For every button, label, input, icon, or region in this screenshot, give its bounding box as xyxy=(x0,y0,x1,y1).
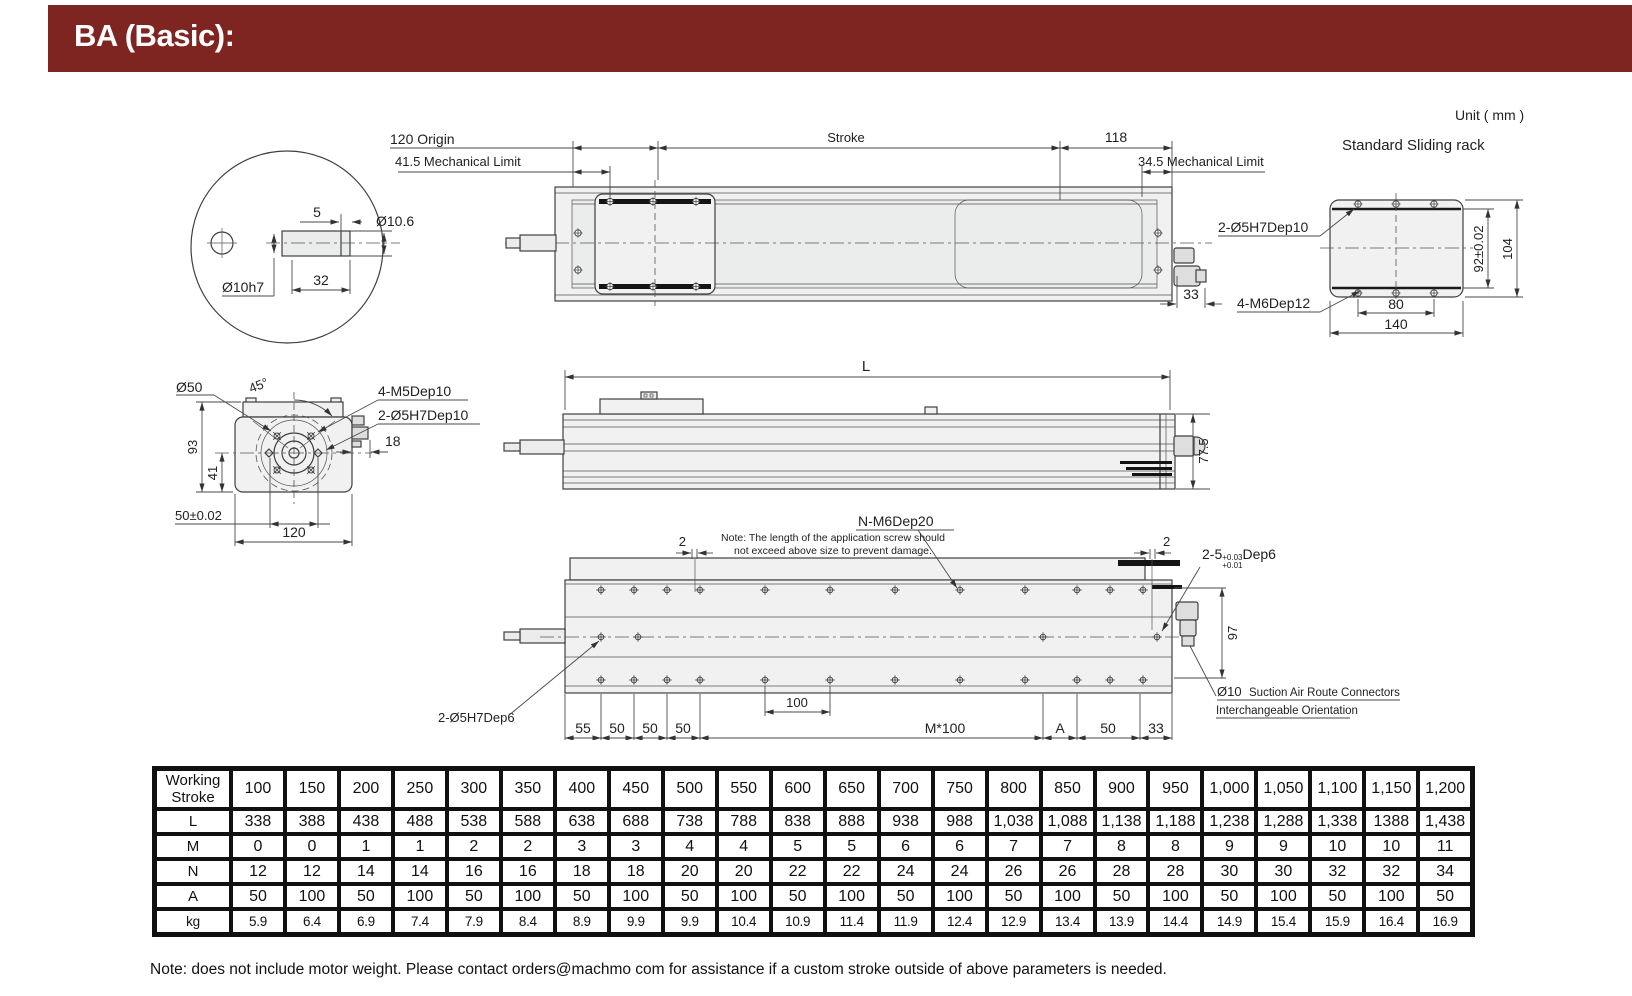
table-cell: 15.4 xyxy=(1256,909,1310,935)
table-cell: 250 xyxy=(393,769,447,810)
table-cell: 8 xyxy=(1095,834,1149,859)
table-cell: 688 xyxy=(609,809,663,834)
end-pin-label: 2-Ø5H7Dep10 xyxy=(378,407,468,423)
table-cell: 24 xyxy=(933,859,987,884)
table-cell: 16 xyxy=(447,859,501,884)
table-cell: 600 xyxy=(771,769,825,810)
table-cell: 788 xyxy=(717,809,771,834)
dim-55: 55 xyxy=(575,720,591,736)
table-cell: 50 xyxy=(1418,884,1472,909)
dim-118: 118 xyxy=(1105,129,1128,145)
side-dim-L: L xyxy=(862,358,870,375)
rack-dim-140: 140 xyxy=(1384,316,1408,332)
table-cell: 24 xyxy=(879,859,933,884)
table-cell: 100 xyxy=(825,884,879,909)
table-cell: 438 xyxy=(339,809,393,834)
table-cell: 50 xyxy=(771,884,825,909)
table-cell: 50 xyxy=(555,884,609,909)
table-cell: 1 xyxy=(339,834,393,859)
table-cell: 10 xyxy=(1364,834,1418,859)
rack-dim-92: 92±0.02 xyxy=(1471,226,1486,273)
dim-dia10-6: Ø10.6 xyxy=(376,213,414,229)
table-cell: 1,088 xyxy=(1041,809,1095,834)
table-cell: 1,150 xyxy=(1364,769,1418,810)
table-cell: 100 xyxy=(717,884,771,909)
top-plan-view: 120 Origin Stroke 118 41.5 Mechanical Li… xyxy=(390,129,1265,308)
table-cell: 100 xyxy=(1256,884,1310,909)
table-cell: 100 xyxy=(609,884,663,909)
table-cell: 150 xyxy=(285,769,339,810)
section-header-bar: BA (Basic): xyxy=(48,5,1632,72)
table-cell: 7 xyxy=(987,834,1041,859)
table-cell: 1,000 xyxy=(1202,769,1256,810)
table-cell: 3 xyxy=(609,834,663,859)
rack-dim-104: 104 xyxy=(1500,238,1515,260)
footnote: Note: does not include motor weight. Ple… xyxy=(150,961,1167,979)
table-cell: 0 xyxy=(231,834,285,859)
page-title: BA (Basic): xyxy=(48,5,1632,53)
table-cell: 50 xyxy=(1095,884,1149,909)
dim-A: A xyxy=(1055,720,1065,736)
table-cell: 32 xyxy=(1310,859,1364,884)
table-cell: 988 xyxy=(933,809,987,834)
table-cell: 3 xyxy=(555,834,609,859)
table-cell: 14 xyxy=(339,859,393,884)
table-cell: 388 xyxy=(285,809,339,834)
dim-mech-limit-left: 41.5 Mechanical Limit xyxy=(395,154,521,169)
table-row: N121214141616181820202222242426262828303… xyxy=(155,859,1473,884)
table-cell: 50 xyxy=(231,884,285,909)
table-cell: 26 xyxy=(987,859,1041,884)
table-cell: 100 xyxy=(285,884,339,909)
table-cell: 1,050 xyxy=(1256,769,1310,810)
table-cell: 12 xyxy=(285,859,339,884)
table-cell: 338 xyxy=(231,809,285,834)
table-cell: 13.9 xyxy=(1095,909,1149,935)
row-header: A xyxy=(155,884,232,909)
row-header: Working Stroke xyxy=(155,769,232,810)
table-cell: 50 xyxy=(447,884,501,909)
table-cell: 18 xyxy=(555,859,609,884)
table-cell: 50 xyxy=(987,884,1041,909)
table-cell: 9 xyxy=(1202,834,1256,859)
table-cell: 16.9 xyxy=(1418,909,1472,935)
end-dim-45: 45° xyxy=(247,375,271,396)
table-cell: 938 xyxy=(879,809,933,834)
dim-50b: 50 xyxy=(642,720,658,736)
table-cell: 1,438 xyxy=(1418,809,1472,834)
table-cell: 1,338 xyxy=(1310,809,1364,834)
dim-mech-limit-right: 34.5 Mechanical Limit xyxy=(1138,154,1264,169)
table-cell: 538 xyxy=(447,809,501,834)
bottom-orientation-label: Interchangeable Orientation xyxy=(1216,705,1358,717)
table-cell: 12.4 xyxy=(933,909,987,935)
table-cell: 1388 xyxy=(1364,809,1418,834)
table-cell: 300 xyxy=(447,769,501,810)
table-cell: 28 xyxy=(1095,859,1149,884)
table-cell: 400 xyxy=(555,769,609,810)
table-cell: 800 xyxy=(987,769,1041,810)
table-cell: 11 xyxy=(1418,834,1472,859)
bottom-dim-chain: 55 50 50 50 M*100 A 50 33 xyxy=(565,694,1172,740)
technical-drawing: Unit ( mm ) Standard Sliding rack 5 Ø10.… xyxy=(0,80,1632,740)
table-cell: 8 xyxy=(1148,834,1202,859)
table-cell: 638 xyxy=(555,809,609,834)
table-row: A501005010050100501005010050100501005010… xyxy=(155,884,1473,909)
table-row: M00112233445566778899101011 xyxy=(155,834,1473,859)
table-cell: 50 xyxy=(1310,884,1364,909)
table-cell: 100 xyxy=(1364,884,1418,909)
table-cell: 0 xyxy=(285,834,339,859)
dim-50a: 50 xyxy=(609,720,625,736)
table-cell: 900 xyxy=(1095,769,1149,810)
table-cell: 750 xyxy=(933,769,987,810)
table-cell: 12 xyxy=(231,859,285,884)
bottom-dim-2-right: 2 xyxy=(1163,534,1170,549)
table-cell: 1,238 xyxy=(1202,809,1256,834)
bottom-note-line1: Note: The length of the application scre… xyxy=(721,532,945,544)
bottom-dim-2-left: 2 xyxy=(679,534,686,549)
table-cell: 7 xyxy=(1041,834,1095,859)
table-cell: 2 xyxy=(501,834,555,859)
end-dim-93: 93 xyxy=(185,440,200,454)
sliding-rack-view: 2-Ø5H7Dep10 4-M6Dep12 92±0.02 104 80 xyxy=(1218,193,1523,337)
table-cell: 838 xyxy=(771,809,825,834)
table-cell: 5 xyxy=(771,834,825,859)
table-cell: 650 xyxy=(825,769,879,810)
table-cell: 6.4 xyxy=(285,909,339,935)
bottom-screw-label: N-M6Dep20 xyxy=(858,513,934,529)
dim-33-top: 33 xyxy=(1183,286,1199,302)
table-cell: 1,038 xyxy=(987,809,1041,834)
table-cell: 10.9 xyxy=(771,909,825,935)
end-dim-18: 18 xyxy=(385,433,401,449)
table-cell: 7.9 xyxy=(447,909,501,935)
table-row: kg5.96.46.97.47.98.48.99.99.910.410.911.… xyxy=(155,909,1473,935)
table-cell: 888 xyxy=(825,809,879,834)
side-dim-77-5: 77.5 xyxy=(1196,438,1211,463)
table-cell: 9.9 xyxy=(663,909,717,935)
table-cell: 4 xyxy=(717,834,771,859)
table-cell: 5.9 xyxy=(231,909,285,935)
table-cell: 20 xyxy=(717,859,771,884)
table-cell: 1,200 xyxy=(1418,769,1472,810)
dim-stroke: Stroke xyxy=(827,130,865,145)
table-cell: 20 xyxy=(663,859,717,884)
table-cell: 26 xyxy=(1041,859,1095,884)
table-cell: 34 xyxy=(1418,859,1472,884)
table-cell: 50 xyxy=(1202,884,1256,909)
table-cell: 9.9 xyxy=(609,909,663,935)
end-view: 45° Ø50 4-M5Dep10 2-Ø5H7Dep10 18 93 41 xyxy=(175,375,480,546)
table-cell: 100 xyxy=(501,884,555,909)
rack-dim-80: 80 xyxy=(1388,296,1404,312)
table-cell: 100 xyxy=(1148,884,1202,909)
table-cell: 16 xyxy=(501,859,555,884)
table-cell: 700 xyxy=(879,769,933,810)
table-row: L338388438488538588638688738788838888938… xyxy=(155,809,1473,834)
table-cell: 1,288 xyxy=(1256,809,1310,834)
dim-120-origin: 120 Origin xyxy=(390,131,455,147)
table-cell: 18 xyxy=(609,859,663,884)
table-cell: 7.4 xyxy=(393,909,447,935)
table-cell: 10.4 xyxy=(717,909,771,935)
bottom-suction-label: Suction Air Route Connectors xyxy=(1249,687,1400,699)
table-cell: 950 xyxy=(1148,769,1202,810)
rack-screw-label: 4-M6Dep12 xyxy=(1237,295,1310,311)
table-cell: 1,138 xyxy=(1095,809,1149,834)
table-cell: 850 xyxy=(1041,769,1095,810)
tol-suffix: Dep6 xyxy=(1242,546,1275,562)
end-dim-41: 41 xyxy=(205,466,220,480)
bottom-dim-97: 97 xyxy=(1225,626,1240,640)
dim-33-bottom: 33 xyxy=(1148,720,1164,736)
bottom-pin-label-right: 2-5+0.03+0.01Dep6 xyxy=(1202,546,1276,570)
table-cell: 30 xyxy=(1256,859,1310,884)
rack-pin-label: 2-Ø5H7Dep10 xyxy=(1218,219,1308,235)
table-cell: 100 xyxy=(393,884,447,909)
dim-dia10h7: Ø10h7 xyxy=(222,279,264,295)
table-cell: 28 xyxy=(1148,859,1202,884)
table-cell: 738 xyxy=(663,809,717,834)
table-cell: 6.9 xyxy=(339,909,393,935)
end-dim-120: 120 xyxy=(282,524,306,540)
table-cell: 488 xyxy=(393,809,447,834)
dim-50d: 50 xyxy=(1100,720,1116,736)
table-cell: 4 xyxy=(663,834,717,859)
table-cell: 500 xyxy=(663,769,717,810)
table-cell: 14 xyxy=(393,859,447,884)
table-cell: 14.4 xyxy=(1148,909,1202,935)
tol-lower: +0.01 xyxy=(1222,562,1242,570)
table-row: Working Stroke10015020025030035040045050… xyxy=(155,769,1473,810)
table-cell: 8.9 xyxy=(555,909,609,935)
table-cell: 6 xyxy=(933,834,987,859)
table-cell: 200 xyxy=(339,769,393,810)
table-cell: 100 xyxy=(1041,884,1095,909)
end-dim-50: 50±0.02 xyxy=(175,508,222,523)
table-cell: 9 xyxy=(1256,834,1310,859)
row-header: M xyxy=(155,834,232,859)
table-cell: 12.9 xyxy=(987,909,1041,935)
table-cell: 22 xyxy=(771,859,825,884)
datasheet-page: BA (Basic): Unit ( mm ) Standard Sliding… xyxy=(0,0,1632,996)
table-cell: 5 xyxy=(825,834,879,859)
side-view: L 77.5 xyxy=(504,358,1211,489)
bottom-pin-label-left: 2-Ø5H7Dep6 xyxy=(438,710,515,725)
table-cell: 1,188 xyxy=(1148,809,1202,834)
table-cell: 50 xyxy=(879,884,933,909)
table-cell: 14.9 xyxy=(1202,909,1256,935)
table-cell: 588 xyxy=(501,809,555,834)
table-cell: 10 xyxy=(1310,834,1364,859)
table-cell: 11.9 xyxy=(879,909,933,935)
end-dia-50: Ø50 xyxy=(176,379,203,395)
dim-M100: M*100 xyxy=(925,720,966,736)
spec-table: Working Stroke10015020025030035040045050… xyxy=(152,766,1475,937)
unit-label: Unit ( mm ) xyxy=(1455,107,1524,123)
table-cell: 100 xyxy=(231,769,285,810)
row-header: kg xyxy=(155,909,232,935)
row-header: N xyxy=(155,859,232,884)
table-cell: 50 xyxy=(339,884,393,909)
bottom-dia-10: Ø10 xyxy=(1217,684,1242,699)
end-screw-label: 4-M5Dep10 xyxy=(378,383,451,399)
table-cell: 30 xyxy=(1202,859,1256,884)
table-cell: 13.4 xyxy=(1041,909,1095,935)
table-cell: 450 xyxy=(609,769,663,810)
table-cell: 22 xyxy=(825,859,879,884)
table-cell: 2 xyxy=(447,834,501,859)
tol-prefix: 2-5 xyxy=(1202,546,1222,562)
table-cell: 16.4 xyxy=(1364,909,1418,935)
bottom-dim-100: 100 xyxy=(786,695,808,710)
table-cell: 11.4 xyxy=(825,909,879,935)
table-cell: 550 xyxy=(717,769,771,810)
table-cell: 15.9 xyxy=(1310,909,1364,935)
dim-50c: 50 xyxy=(675,720,691,736)
bottom-note-line2: not exceed above size to prevent damage. xyxy=(734,545,932,557)
dim-5: 5 xyxy=(313,204,321,220)
table-cell: 350 xyxy=(501,769,555,810)
table-cell: 50 xyxy=(663,884,717,909)
table-cell: 6 xyxy=(879,834,933,859)
dim-32: 32 xyxy=(313,272,329,288)
table-cell: 1,100 xyxy=(1310,769,1364,810)
shaft-detail-view: 5 Ø10.6 Ø10h7 32 xyxy=(191,151,414,343)
table-cell: 1 xyxy=(393,834,447,859)
rack-title: Standard Sliding rack xyxy=(1342,137,1485,154)
table-cell: 100 xyxy=(933,884,987,909)
spec-table-body: Working Stroke10015020025030035040045050… xyxy=(155,769,1473,935)
table-cell: 32 xyxy=(1364,859,1418,884)
row-header: L xyxy=(155,809,232,834)
table-cell: 8.4 xyxy=(501,909,555,935)
